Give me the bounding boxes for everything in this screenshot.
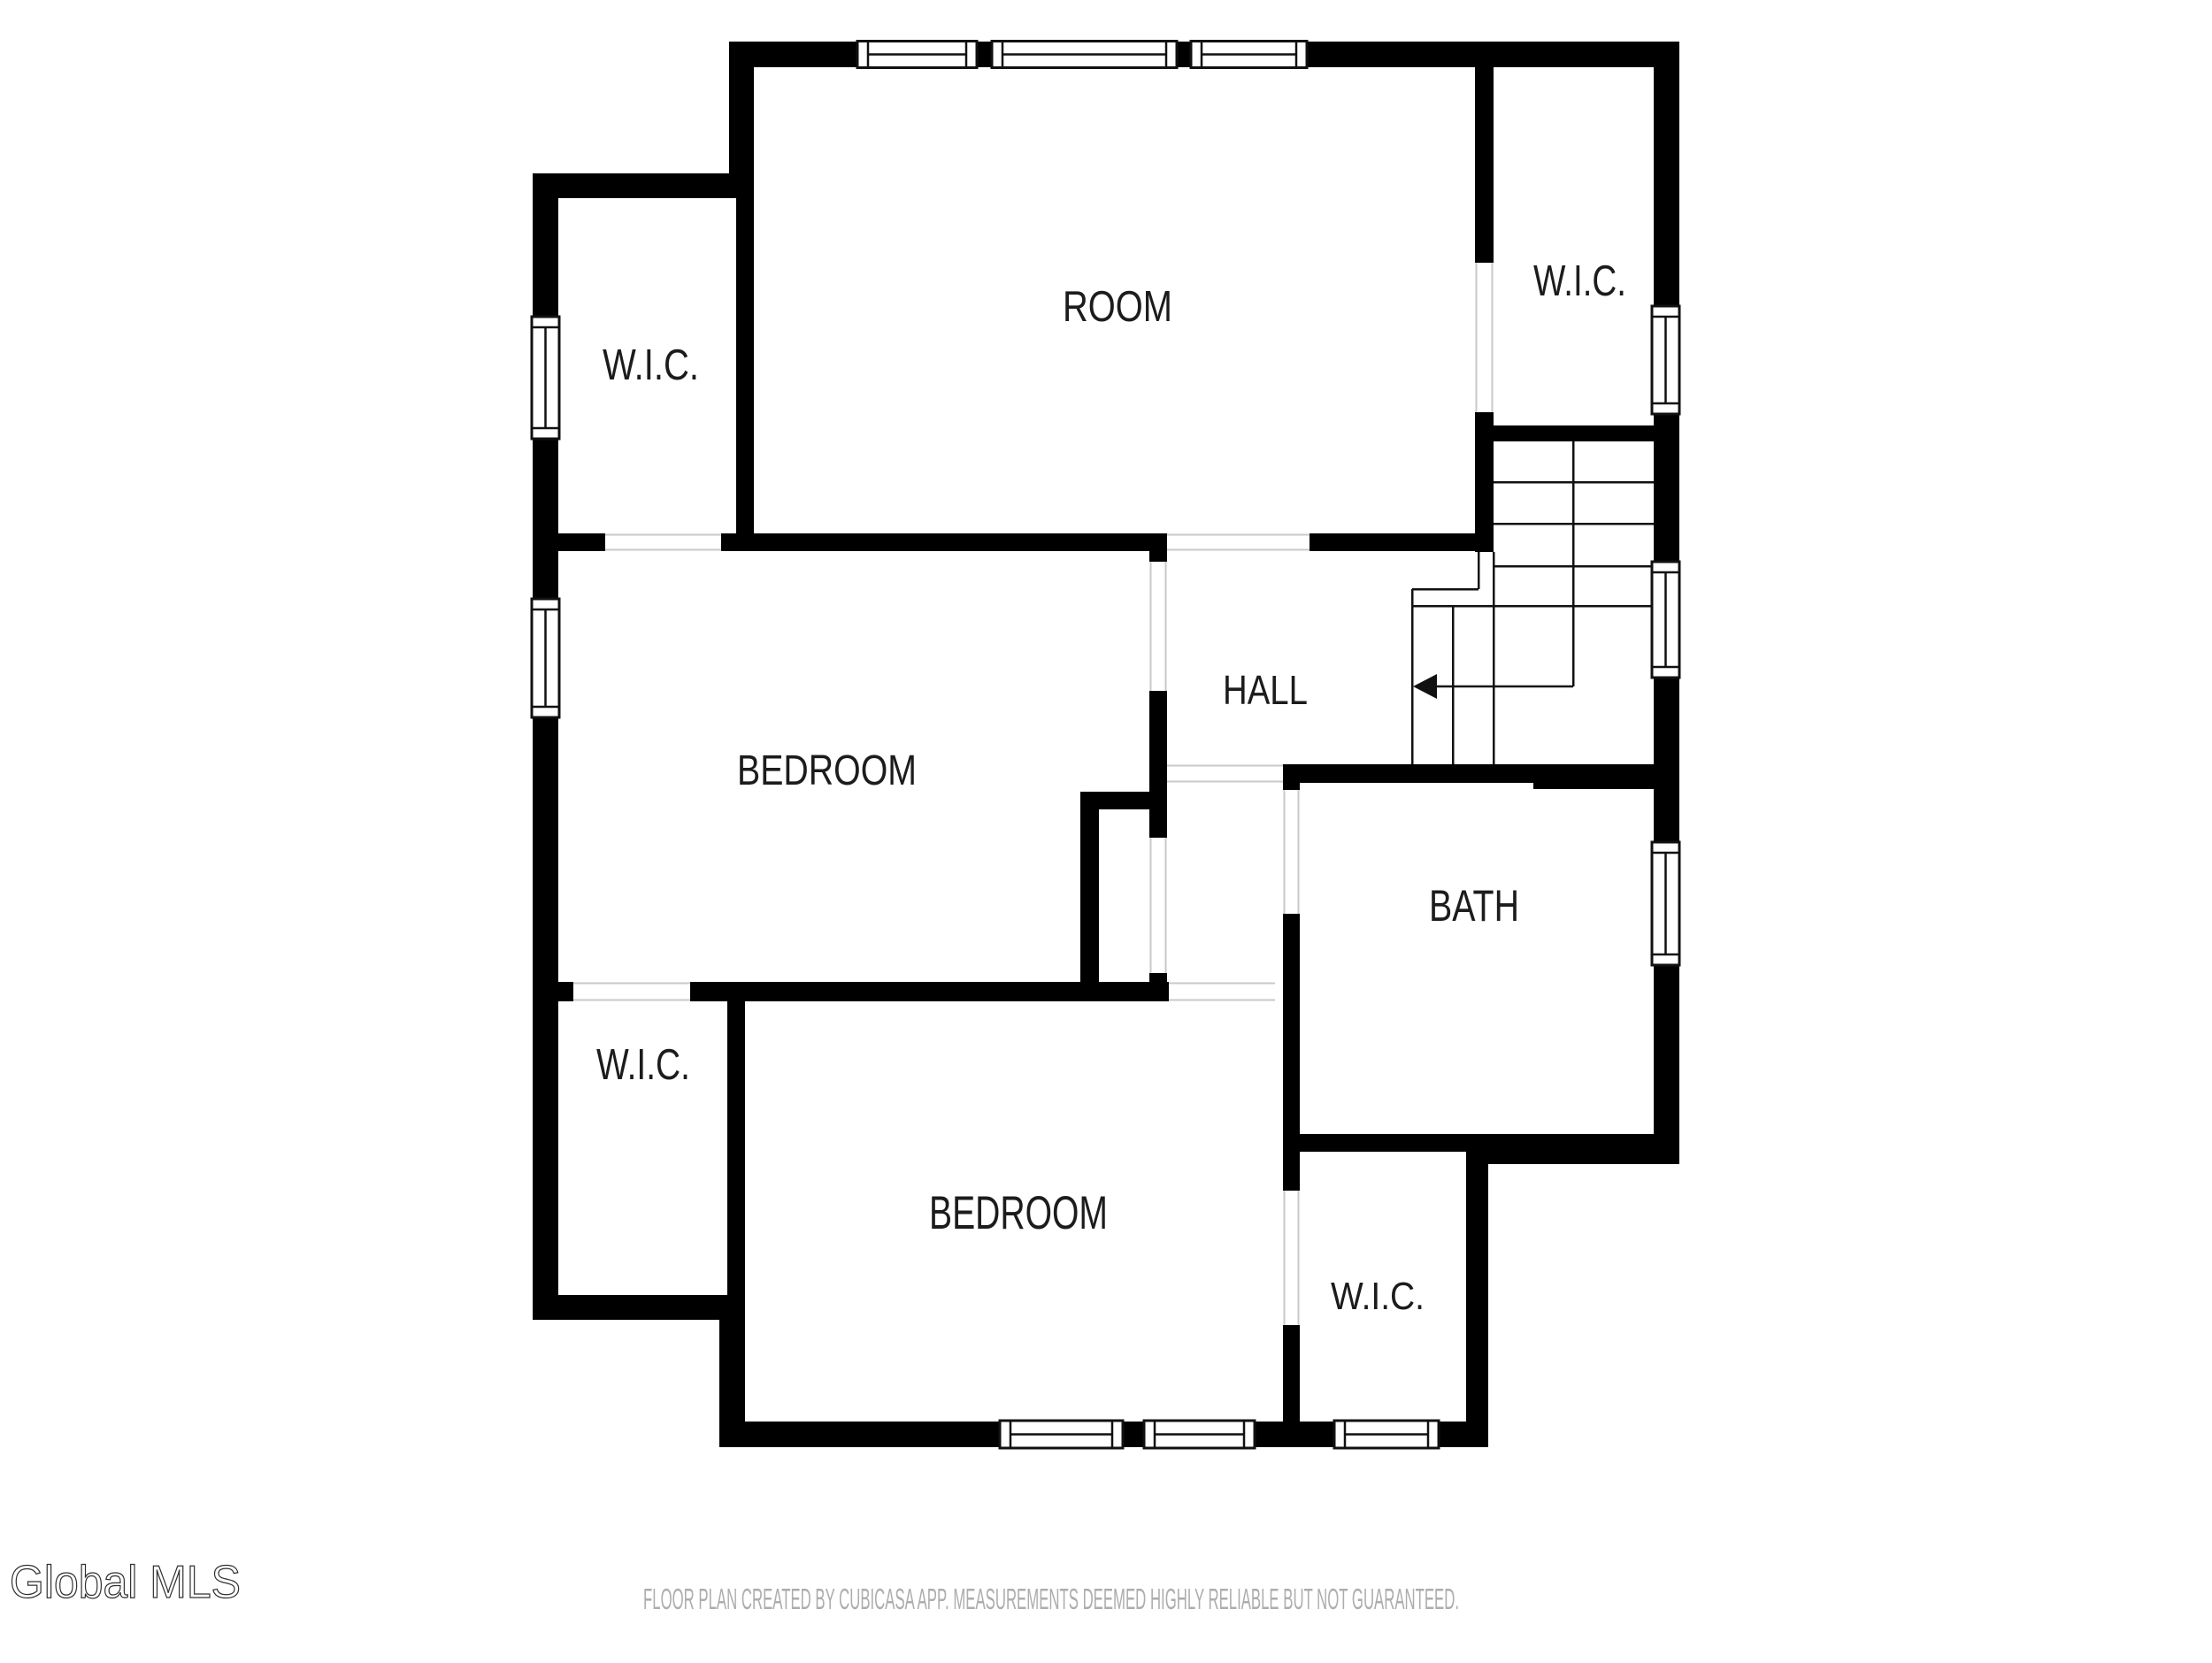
- svg-text:BATH: BATH: [1429, 881, 1519, 931]
- svg-text:W.I.C.: W.I.C.: [1331, 1275, 1425, 1318]
- svg-text:W.I.C.: W.I.C.: [603, 341, 699, 389]
- svg-text:W.I.C.: W.I.C.: [1533, 257, 1626, 305]
- svg-text:ROOM: ROOM: [1063, 283, 1172, 331]
- svg-text:Global MLS: Global MLS: [10, 1557, 241, 1608]
- svg-text:W.I.C.: W.I.C.: [596, 1041, 690, 1089]
- svg-text:HALL: HALL: [1223, 667, 1308, 713]
- svg-text:BEDROOM: BEDROOM: [929, 1187, 1108, 1239]
- svg-text:BEDROOM: BEDROOM: [737, 747, 917, 794]
- svg-text:FLOOR PLAN CREATED BY CUBICASA: FLOOR PLAN CREATED BY CUBICASA APP. MEAS…: [643, 1583, 1459, 1615]
